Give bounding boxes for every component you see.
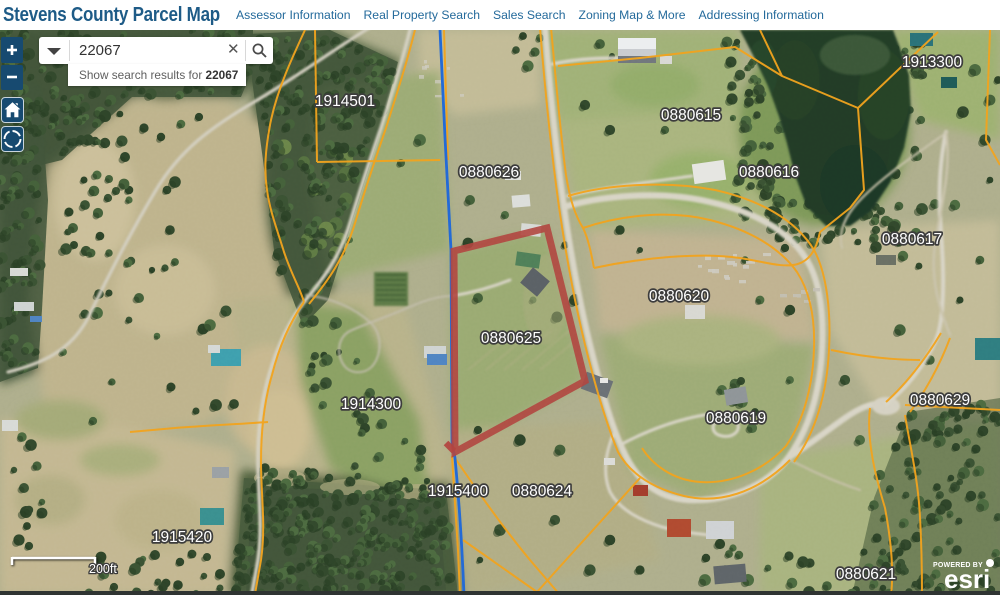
svg-text:esri: esri xyxy=(944,564,990,594)
svg-text:200ft: 200ft xyxy=(89,562,117,576)
